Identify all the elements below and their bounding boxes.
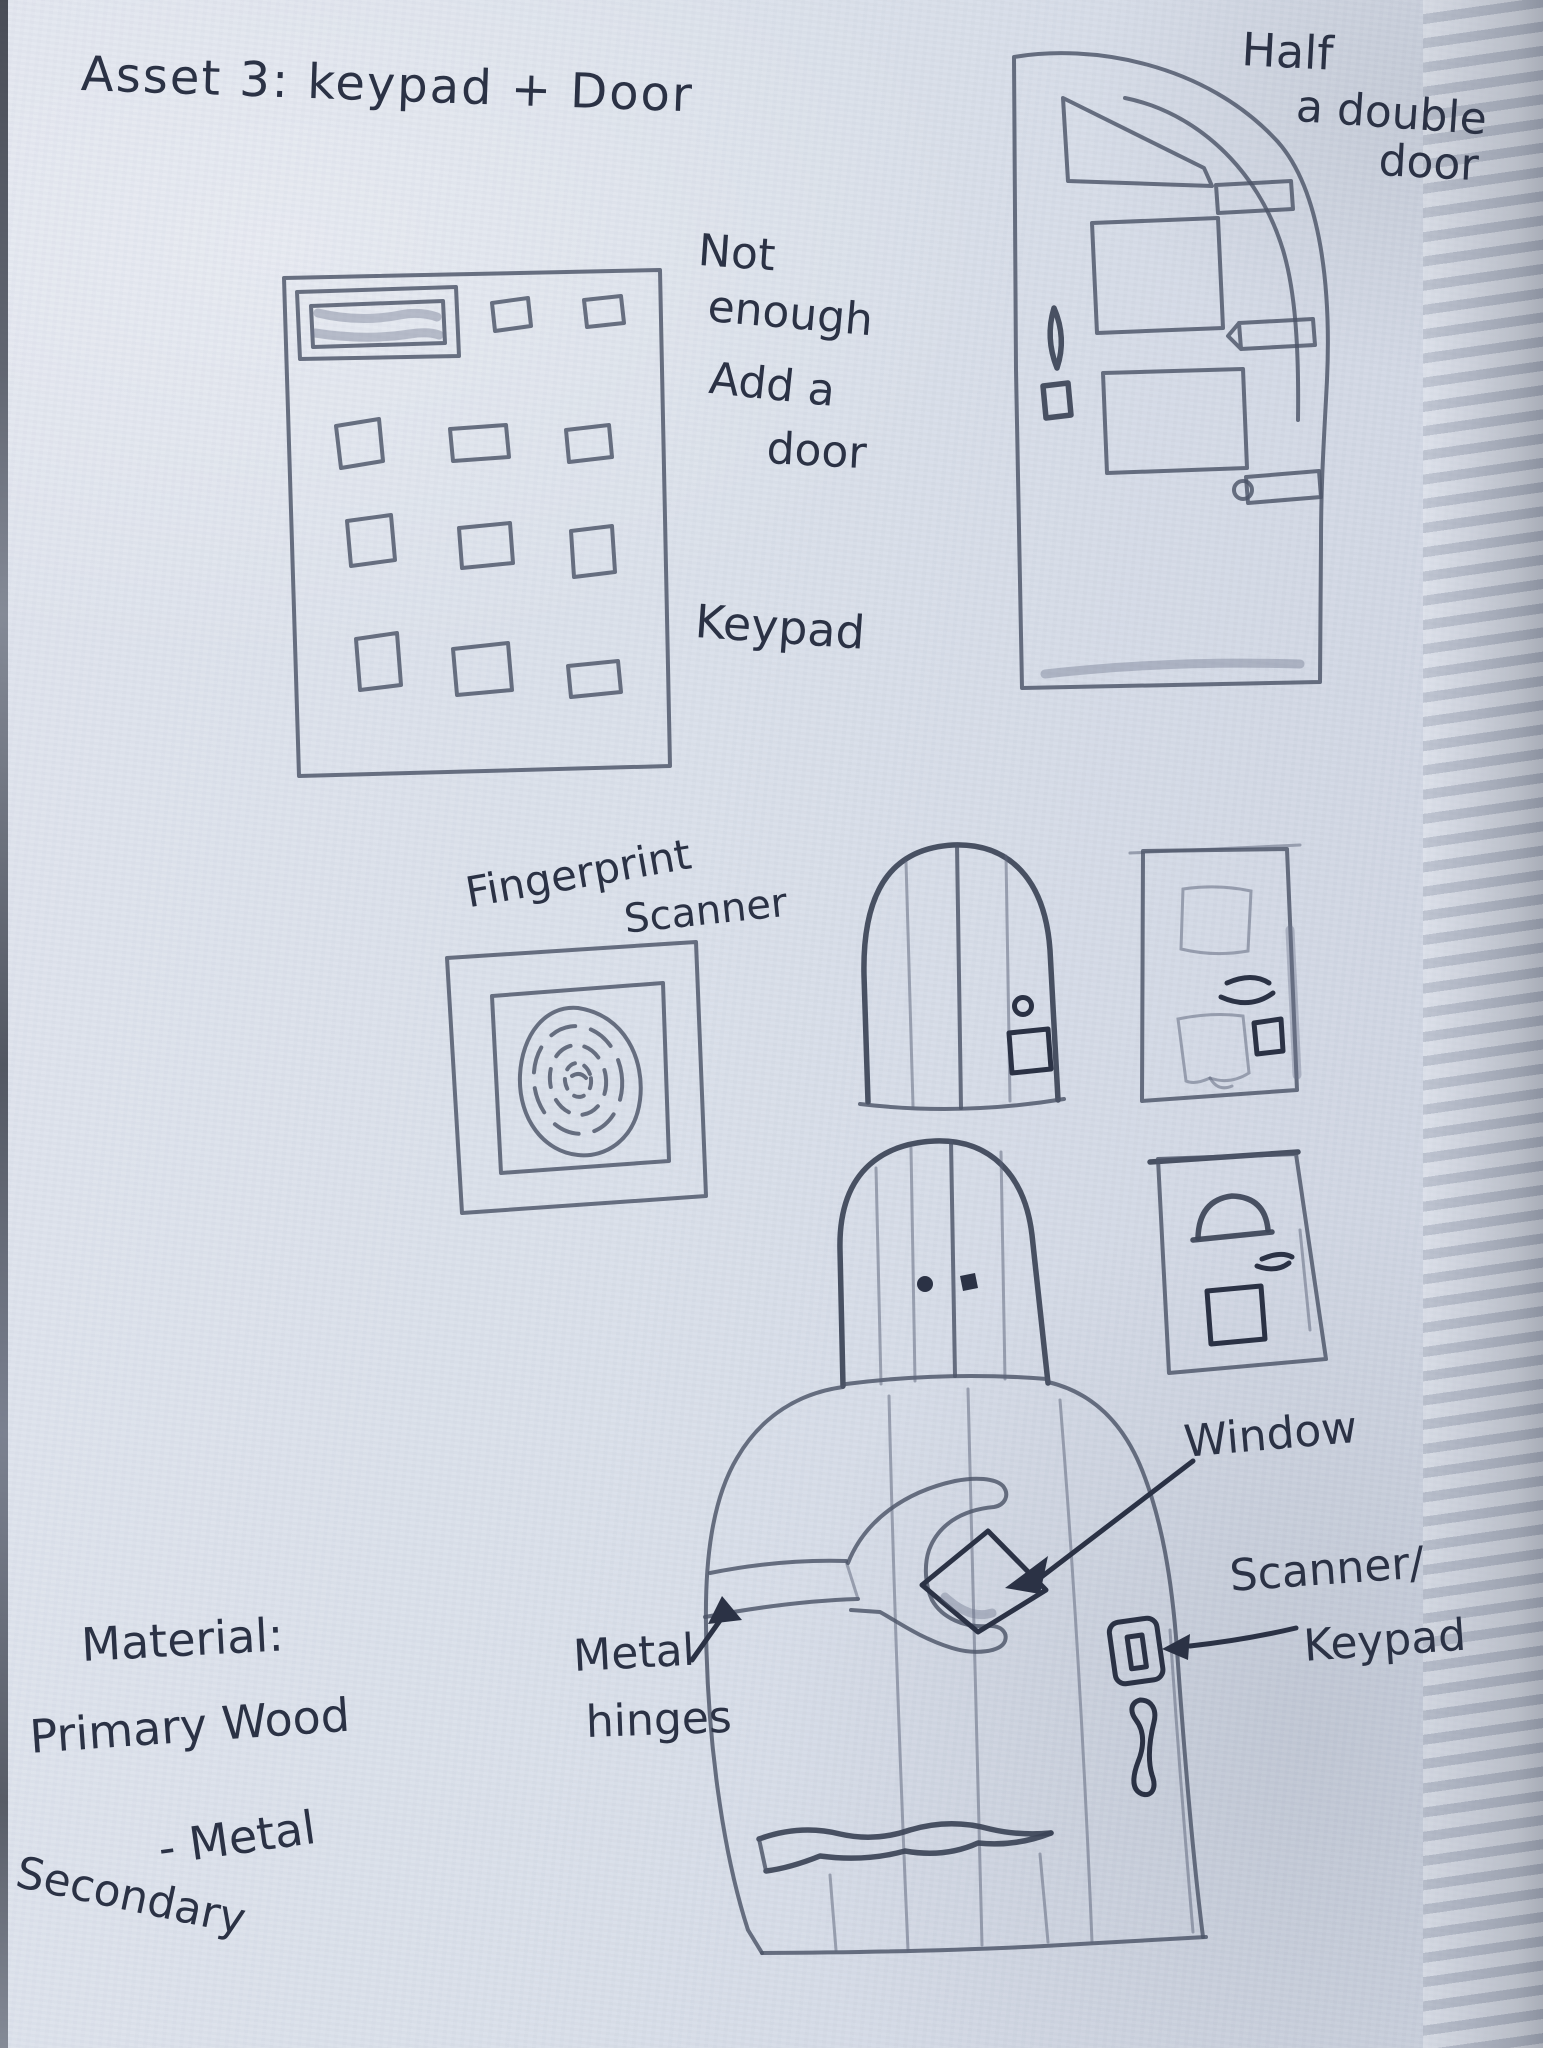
half-double-door-sketch xyxy=(1014,53,1328,688)
body-bottom-edge xyxy=(762,1937,1206,1953)
door-knob xyxy=(1015,998,1032,1015)
door-hinge xyxy=(1228,319,1315,349)
hand-holding-window xyxy=(848,1479,1006,1652)
plank-line xyxy=(968,1389,982,1945)
door-panel xyxy=(1063,98,1212,186)
arch-window-base xyxy=(1193,1232,1272,1240)
plank-line xyxy=(957,845,961,1108)
keypad-sketch xyxy=(284,270,670,776)
metal-hinges-label: hinges xyxy=(585,1693,733,1747)
plank-line xyxy=(1060,1400,1092,1942)
door-panel xyxy=(1178,1015,1249,1083)
door-bottom-shading xyxy=(1045,663,1300,674)
plank-line xyxy=(876,1168,881,1384)
head-bottom xyxy=(846,1376,1047,1384)
door-handle xyxy=(1257,1263,1289,1269)
keypad-button xyxy=(566,425,612,462)
door-keyplate xyxy=(1043,383,1071,418)
keypad-button xyxy=(571,526,615,577)
plank-line xyxy=(911,1148,915,1381)
keypad-button xyxy=(356,633,401,690)
keypad-note-label: door xyxy=(765,424,867,478)
arched-door-sketch xyxy=(860,845,1064,1109)
door-panel-study-1 xyxy=(1130,845,1300,1101)
fingerprint-scanner-sketch xyxy=(447,942,706,1213)
keypad-button xyxy=(453,643,512,695)
half-double-door-label: door xyxy=(1377,136,1479,190)
keypad-button xyxy=(568,661,621,697)
scanner-pad xyxy=(1009,1029,1051,1073)
scanner-arrow xyxy=(1162,1628,1296,1660)
door-panel xyxy=(1103,369,1247,473)
door-handle xyxy=(1132,1700,1155,1795)
head-outline xyxy=(840,1141,1048,1386)
door-panel-study-2 xyxy=(1150,1152,1326,1373)
figure-door-sketch xyxy=(705,1141,1206,1953)
keypad-button xyxy=(450,425,509,461)
scanner-keypad-pad xyxy=(1108,1617,1164,1685)
keypad-button xyxy=(347,515,395,566)
door-panel xyxy=(1207,1286,1265,1344)
hinges-arrow xyxy=(692,1596,742,1660)
body-outline-right xyxy=(1048,1382,1203,1937)
door-handle xyxy=(1227,978,1269,984)
door-handle xyxy=(1221,993,1273,1003)
plank-line xyxy=(889,1396,908,1950)
peephole-eye xyxy=(917,1276,933,1292)
door-panel xyxy=(1092,218,1223,333)
keypad-button xyxy=(492,298,531,331)
material-heading: Material: xyxy=(80,1609,285,1671)
peephole-eye xyxy=(960,1273,978,1291)
plank-line xyxy=(1170,1630,1193,1932)
keypad-button xyxy=(459,523,513,568)
scanner-keypad-label: Keypad xyxy=(1302,1611,1468,1671)
keypad-display xyxy=(297,287,459,359)
sketch-page: Asset 3: keypad + Door Half a double doo… xyxy=(0,0,1543,2048)
plank-line xyxy=(951,1141,955,1376)
keypad-caption: Keypad xyxy=(693,596,866,659)
door-hinge-pin xyxy=(1234,481,1252,499)
door-handle xyxy=(1262,1254,1292,1259)
scanner-pad xyxy=(1254,1019,1283,1054)
keypad-button xyxy=(336,419,383,468)
plank-line xyxy=(906,862,913,1106)
door-handle-oval xyxy=(1050,308,1061,368)
window-arrow xyxy=(1005,1461,1193,1594)
plank-line xyxy=(1001,1152,1005,1379)
metal-hinges-label: Metal xyxy=(572,1626,696,1682)
door-hinge xyxy=(1246,471,1321,503)
half-double-door-label: Half xyxy=(1240,24,1334,80)
fingerprint-icon xyxy=(520,1008,641,1156)
keypad-button xyxy=(584,296,624,327)
door-panel xyxy=(1181,887,1251,954)
keypad-note-label: Not xyxy=(697,226,777,281)
